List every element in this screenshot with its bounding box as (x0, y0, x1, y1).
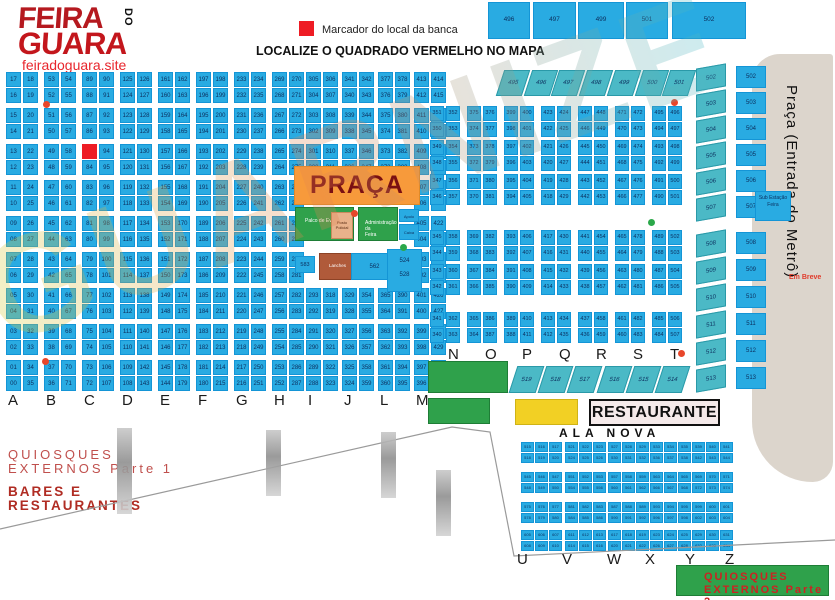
stall: 354 (446, 140, 460, 155)
stall: 43 (44, 252, 59, 267)
stall: 318 (323, 288, 338, 303)
stall: 69 (61, 340, 76, 355)
stall: 349 (430, 140, 444, 155)
stall: 450 (594, 140, 608, 155)
stall: 248 (251, 324, 266, 339)
stall: 108 (120, 376, 135, 391)
stall: 147 (158, 324, 173, 339)
stall: 360 (446, 264, 460, 279)
stall: 367 (467, 264, 481, 279)
stall: 537 (664, 453, 677, 463)
stall: 422 (431, 216, 446, 231)
stall: 381 (483, 190, 497, 205)
stall: 580 (549, 513, 562, 523)
stall: 609 (535, 541, 548, 551)
stall: 266 (272, 124, 287, 139)
stall: 185 (196, 288, 211, 303)
sector-block: 504 (736, 118, 766, 140)
stall: 161 (158, 72, 173, 87)
stall: 287 (289, 376, 304, 391)
stall: 433 (557, 280, 571, 295)
stall: 328 (342, 304, 357, 319)
stall: 576 (535, 502, 548, 512)
stall: 615 (579, 541, 592, 551)
stall: 152 (158, 232, 173, 247)
stall: 326 (342, 340, 357, 355)
stall: 445 (578, 140, 592, 155)
stall: 544 (720, 453, 733, 463)
stall: 480 (631, 264, 645, 279)
pillar (266, 430, 281, 496)
stall-583: 583 (295, 256, 315, 273)
stall: 384 (483, 264, 497, 279)
row-letter: F (198, 392, 207, 409)
stall: 383 (483, 246, 497, 261)
stall: 221 (234, 288, 249, 303)
stall: 101 (99, 268, 114, 283)
stall: 97 (99, 196, 114, 211)
stall: 342 (359, 72, 374, 87)
stall: 167 (175, 160, 190, 175)
stall: 348 (430, 156, 444, 171)
sector-block: 496 (488, 2, 530, 39)
stall: 345 (430, 230, 444, 245)
stall: 410 (520, 312, 534, 327)
stall: 358 (359, 360, 374, 375)
stall: 561 (622, 483, 635, 493)
stall: 168 (175, 180, 190, 195)
stall: 594 (664, 502, 677, 512)
stall: 189 (196, 216, 211, 231)
stall: 570 (706, 472, 719, 482)
stall: 381 (395, 124, 410, 139)
stall: 249 (251, 340, 266, 355)
stall: 30 (23, 288, 38, 303)
stall: 170 (175, 216, 190, 231)
stall: 415 (431, 88, 446, 103)
stall: 134 (137, 216, 152, 231)
stall: 02 (6, 340, 21, 355)
stall: 46 (44, 196, 59, 211)
stall: 369 (467, 230, 481, 245)
stall: 556 (593, 483, 606, 493)
stall: 227 (234, 180, 249, 195)
stall: 285 (289, 340, 304, 355)
gate-marker-dot (648, 219, 655, 226)
stall: 327 (342, 324, 357, 339)
stall: 337 (342, 144, 357, 159)
row-letter: V (562, 551, 572, 568)
stall: 547 (549, 472, 562, 482)
stall: 395 (504, 174, 518, 189)
stall: 498 (668, 140, 682, 155)
stall: 301 (306, 144, 321, 159)
stall: 270 (289, 72, 304, 87)
stall: 613 (593, 530, 606, 540)
stall: 15 (6, 108, 21, 123)
stall: 396 (414, 376, 429, 391)
stall: 00 (6, 376, 21, 391)
stall: 589 (636, 502, 649, 512)
stall: 361 (378, 360, 393, 375)
stall: 193 (196, 144, 211, 159)
stall: 19 (23, 88, 38, 103)
stall: 25 (23, 196, 38, 211)
stall: 133 (137, 196, 152, 211)
metro-plaza-label: Praça (Entrada do Metrô) (783, 85, 800, 415)
stall: 624 (664, 530, 677, 540)
stall: 31 (23, 304, 38, 319)
stall: 376 (378, 88, 393, 103)
stall: 151 (158, 252, 173, 267)
stall: 26 (23, 216, 38, 231)
stall: 380 (395, 108, 410, 123)
stall: 391 (395, 304, 410, 319)
stall: 03 (6, 324, 21, 339)
stall: 90 (99, 72, 114, 87)
stall: 555 (579, 483, 592, 493)
ala-nova-title: ALA NOVA (559, 426, 660, 440)
stall: 571 (720, 472, 733, 482)
stall: 324 (342, 376, 357, 391)
stall: 461 (615, 312, 629, 327)
stall: 361 (446, 280, 460, 295)
stall: 38 (44, 340, 59, 355)
stall: 145 (158, 360, 173, 375)
stall: 499 (668, 156, 682, 171)
stall: 120 (120, 160, 135, 175)
stall: 179 (175, 376, 190, 391)
stall: 620 (608, 541, 621, 551)
stall: 212 (213, 324, 228, 339)
stall-524-label: 524 (388, 250, 421, 264)
stall: 107 (99, 376, 114, 391)
stall: 604 (720, 513, 733, 523)
stall: 175 (175, 304, 190, 319)
sector-block: 508 (696, 229, 726, 257)
stall: 408 (520, 264, 534, 279)
stall: 430 (557, 230, 571, 245)
site-url: feiradoguara.site (22, 57, 126, 73)
stall: 527 (608, 442, 621, 452)
stall: 368 (467, 246, 481, 261)
stall: 397 (414, 360, 429, 375)
page-title: LOCALIZE O QUADRADO VERMELHO NO MAPA (256, 44, 545, 58)
stall: 577 (549, 502, 562, 512)
stall: 323 (323, 376, 338, 391)
stall: 269 (272, 72, 287, 87)
stall: 195 (196, 108, 211, 123)
sector-block: 497 (533, 2, 576, 39)
stall: 449 (594, 122, 608, 137)
stall: 632 (692, 541, 705, 551)
stall: 174 (175, 288, 190, 303)
stall: 243 (251, 232, 266, 247)
stall: 557 (608, 472, 621, 482)
stall: 364 (378, 304, 393, 319)
stall: 36 (44, 376, 59, 391)
stall: 479 (631, 246, 645, 261)
stall: 471 (615, 106, 629, 121)
stall: 96 (99, 180, 114, 195)
stall: 188 (196, 232, 211, 247)
stall: 154 (158, 196, 173, 211)
stall: 534 (664, 442, 677, 452)
praca-apoio-box: Apoio (399, 209, 419, 222)
stall: 391 (504, 264, 518, 279)
stall: 375 (378, 108, 393, 123)
stall: 521 (565, 442, 578, 452)
yellow-block (515, 399, 578, 425)
stall: 01 (6, 360, 21, 375)
stall: 588 (622, 502, 635, 512)
stall: 28 (23, 252, 38, 267)
row-letter: P (522, 346, 532, 363)
stall: 517 (549, 442, 562, 452)
stall: 245 (251, 268, 266, 283)
sector-block: 509 (736, 259, 766, 281)
stall: 373 (378, 144, 393, 159)
stall: 247 (251, 304, 266, 319)
stall: 399 (414, 324, 429, 339)
stall: 351 (430, 106, 444, 121)
stall: 203 (213, 160, 228, 175)
stall: 515 (521, 442, 534, 452)
stall: 549 (535, 483, 548, 493)
stall: 176 (175, 324, 190, 339)
stall: 102 (99, 288, 114, 303)
stall: 111 (120, 324, 135, 339)
stall: 339 (342, 108, 357, 123)
stall: 86 (82, 124, 97, 139)
stall: 599 (692, 502, 705, 512)
stall: 380 (483, 174, 497, 189)
stall: 466 (615, 190, 629, 205)
stall: 173 (175, 268, 190, 283)
stall: 362 (446, 312, 460, 327)
stall: 438 (578, 280, 592, 295)
stall: 210 (213, 288, 228, 303)
stall: 347 (430, 174, 444, 189)
stall: 529 (636, 442, 649, 452)
stall: 76 (82, 304, 97, 319)
stall: 504 (668, 264, 682, 279)
stall: 487 (652, 264, 666, 279)
stall: 377 (483, 122, 497, 137)
stall: 341 (430, 312, 444, 327)
row-letter: R (596, 346, 607, 363)
stall: 39 (44, 324, 59, 339)
stall: 464 (615, 246, 629, 261)
stall: 286 (289, 360, 304, 375)
stall: 70 (61, 360, 76, 375)
stall: 66 (61, 288, 76, 303)
stall: 322 (323, 360, 338, 375)
stall: 91 (99, 88, 114, 103)
stall: 252 (272, 376, 287, 391)
stall: 284 (289, 324, 304, 339)
stall: 602 (692, 513, 705, 523)
stall: 386 (483, 312, 497, 327)
stall: 428 (557, 174, 571, 189)
stall: 401 (520, 122, 534, 137)
stall: 56 (61, 108, 76, 123)
stall: 11 (6, 180, 21, 195)
stall: 24 (23, 180, 38, 195)
sector-block: 506 (696, 167, 726, 195)
stall: 150 (158, 268, 173, 283)
stall: 190 (196, 196, 211, 211)
stall: 71 (61, 376, 76, 391)
stall: 622 (636, 541, 649, 551)
stall: 291 (306, 324, 321, 339)
stall: 241 (251, 196, 266, 211)
stall: 412 (541, 328, 555, 343)
pillar (381, 432, 396, 498)
stall: 222 (234, 268, 249, 283)
stall: 92 (99, 108, 114, 123)
stall: 263 (272, 180, 287, 195)
stall: 611 (565, 530, 578, 540)
stall: 575 (521, 502, 534, 512)
banca-marker (82, 144, 97, 159)
stall: 432 (557, 264, 571, 279)
stall: 256 (272, 304, 287, 319)
stall: 403 (520, 156, 534, 171)
sector-block: 513 (736, 367, 766, 389)
stall: 395 (395, 376, 410, 391)
stall: 359 (446, 246, 460, 261)
stall: 45 (44, 216, 59, 231)
stall: 182 (196, 340, 211, 355)
stall: 130 (137, 144, 152, 159)
stall: 156 (158, 160, 173, 175)
stall: 54 (61, 72, 76, 87)
stall: 228 (234, 160, 249, 175)
stall: 142 (137, 360, 152, 375)
stall: 423 (541, 106, 555, 121)
stall: 103 (99, 304, 114, 319)
stall: 627 (664, 541, 677, 551)
stall: 271 (289, 88, 304, 103)
stall: 131 (137, 160, 152, 175)
stall: 140 (137, 324, 152, 339)
sector-block: 511 (696, 310, 726, 338)
stall: 177 (175, 340, 190, 355)
stall: 143 (137, 376, 152, 391)
stall: 478 (631, 230, 645, 245)
stall: 442 (578, 190, 592, 205)
row-letter: H (274, 392, 285, 409)
stall: 533 (650, 442, 663, 452)
gate-marker-dot (351, 210, 358, 217)
stall: 257 (272, 288, 287, 303)
stall: 419 (541, 174, 555, 189)
stall: 214 (213, 360, 228, 375)
stall: 503 (668, 246, 682, 261)
stall: 502 (668, 230, 682, 245)
stall: 122 (120, 124, 135, 139)
stall: 346 (359, 144, 374, 159)
stall-528-label: 528 (388, 264, 421, 278)
stall: 346 (430, 190, 444, 205)
stall: 254 (272, 340, 287, 355)
stall: 424 (557, 106, 571, 121)
stall: 404 (520, 174, 534, 189)
sector-block: 507 (696, 193, 726, 221)
stall: 191 (196, 180, 211, 195)
stall: 250 (251, 360, 266, 375)
green-block-1 (428, 361, 508, 393)
stall: 375 (467, 106, 481, 121)
stall: 371 (467, 174, 481, 189)
row-letter: G (236, 392, 248, 409)
stall: 566 (650, 483, 663, 493)
stall: 343 (359, 88, 374, 103)
stall: 357 (446, 190, 460, 205)
stall: 559 (636, 472, 649, 482)
stall: 340 (342, 88, 357, 103)
stall: 378 (395, 72, 410, 87)
stall: 05 (6, 288, 21, 303)
em-breve-label: Em Breve (789, 274, 821, 281)
stall: 135 (137, 232, 152, 247)
stall: 213 (213, 340, 228, 355)
stall: 98 (99, 216, 114, 231)
stall: 18 (23, 72, 38, 87)
stall: 562 (636, 483, 649, 493)
stall: 572 (692, 483, 705, 493)
gate-marker-dot (42, 358, 49, 365)
stall: 153 (158, 216, 173, 231)
stall: 89 (82, 72, 97, 87)
stall: 628 (678, 541, 691, 551)
restaurante-box: RESTAURANTE (589, 399, 720, 426)
stall: 261 (272, 216, 287, 231)
stall: 530 (608, 453, 621, 463)
stall: 233 (234, 72, 249, 87)
stall: 585 (579, 513, 592, 523)
stall: 440 (578, 246, 592, 261)
stall: 211 (213, 304, 228, 319)
stall: 121 (120, 144, 135, 159)
stall: 310 (323, 144, 338, 159)
stall: 72 (82, 376, 97, 391)
stall: 421 (541, 140, 555, 155)
stall: 235 (251, 88, 266, 103)
stall: 159 (158, 108, 173, 123)
stall: 429 (557, 190, 571, 205)
stall: 426 (557, 140, 571, 155)
stall: 81 (82, 216, 97, 231)
stall: 452 (594, 174, 608, 189)
stall: 293 (306, 288, 321, 303)
stall: 124 (120, 88, 135, 103)
stall: 631 (720, 530, 733, 540)
row-letter: D (122, 392, 133, 409)
stall: 20 (23, 108, 38, 123)
stall: 532 (636, 453, 649, 463)
stall: 225 (234, 216, 249, 231)
stall: 415 (541, 264, 555, 279)
sector-block: 505 (736, 144, 766, 166)
stall: 240 (251, 180, 266, 195)
quiosques2-line2: EXTERNOS Parte 2 (704, 584, 835, 600)
stall: 224 (234, 232, 249, 247)
stall: 612 (579, 530, 592, 540)
row-letter: M (416, 392, 429, 409)
stall: 490 (652, 190, 666, 205)
